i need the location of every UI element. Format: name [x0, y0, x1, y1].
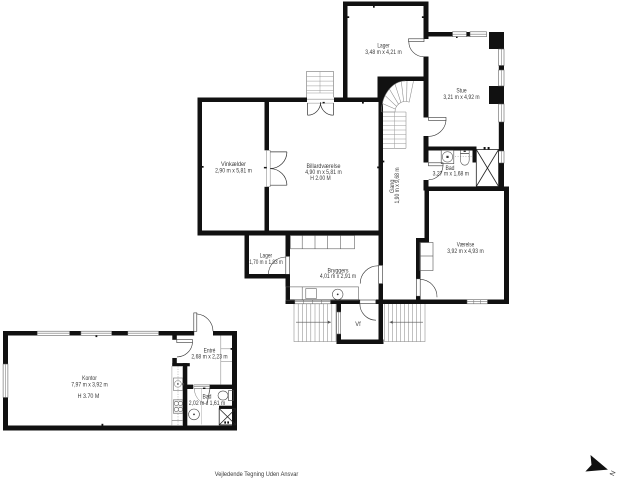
- svg-text:Vinkælder: Vinkælder: [221, 161, 246, 168]
- svg-text:1,70 m x 1,83 m: 1,70 m x 1,83 m: [249, 260, 283, 266]
- svg-text:Lager: Lager: [260, 253, 272, 260]
- svg-text:Entré: Entré: [204, 347, 216, 354]
- svg-text:2,90 m x 5,81 m: 2,90 m x 5,81 m: [215, 169, 252, 175]
- svg-text:H 3.70 M: H 3.70 M: [78, 394, 100, 400]
- svg-text:7,97 m x 3,92 m: 7,97 m x 3,92 m: [71, 383, 107, 389]
- svg-text:Vf: Vf: [355, 321, 361, 328]
- svg-text:3,21 m x 4,92 m: 3,21 m x 4,92 m: [443, 95, 479, 101]
- svg-text:Bad: Bad: [203, 394, 212, 401]
- svg-text:Billardværelse: Billardværelse: [307, 163, 342, 170]
- svg-text:3,27 m x 1,68 m: 3,27 m x 1,68 m: [433, 172, 469, 178]
- svg-text:1,90 m x 9,68 m: 1,90 m x 9,68 m: [395, 167, 401, 203]
- svg-text:Værelse: Værelse: [457, 241, 475, 248]
- svg-text:3,92 m x 4,93 m: 3,92 m x 4,93 m: [447, 249, 484, 255]
- svg-text:3,48 m x 4,21 m: 3,48 m x 4,21 m: [365, 50, 402, 56]
- svg-text:2,68 m x 2,23 m: 2,68 m x 2,23 m: [191, 355, 227, 361]
- svg-text:Stue: Stue: [456, 87, 467, 94]
- svg-text:H 2.00 M: H 2.00 M: [310, 176, 330, 182]
- svg-text:Kontor: Kontor: [82, 375, 97, 382]
- svg-text:Vejledende Tegning Uden Ansvar: Vejledende Tegning Uden Ansvar: [215, 472, 299, 478]
- svg-text:4,01 m x 2,91 m: 4,01 m x 2,91 m: [320, 274, 356, 280]
- svg-text:2,02 m x 1,61 m: 2,02 m x 1,61 m: [189, 401, 226, 407]
- svg-text:Lager: Lager: [377, 42, 389, 49]
